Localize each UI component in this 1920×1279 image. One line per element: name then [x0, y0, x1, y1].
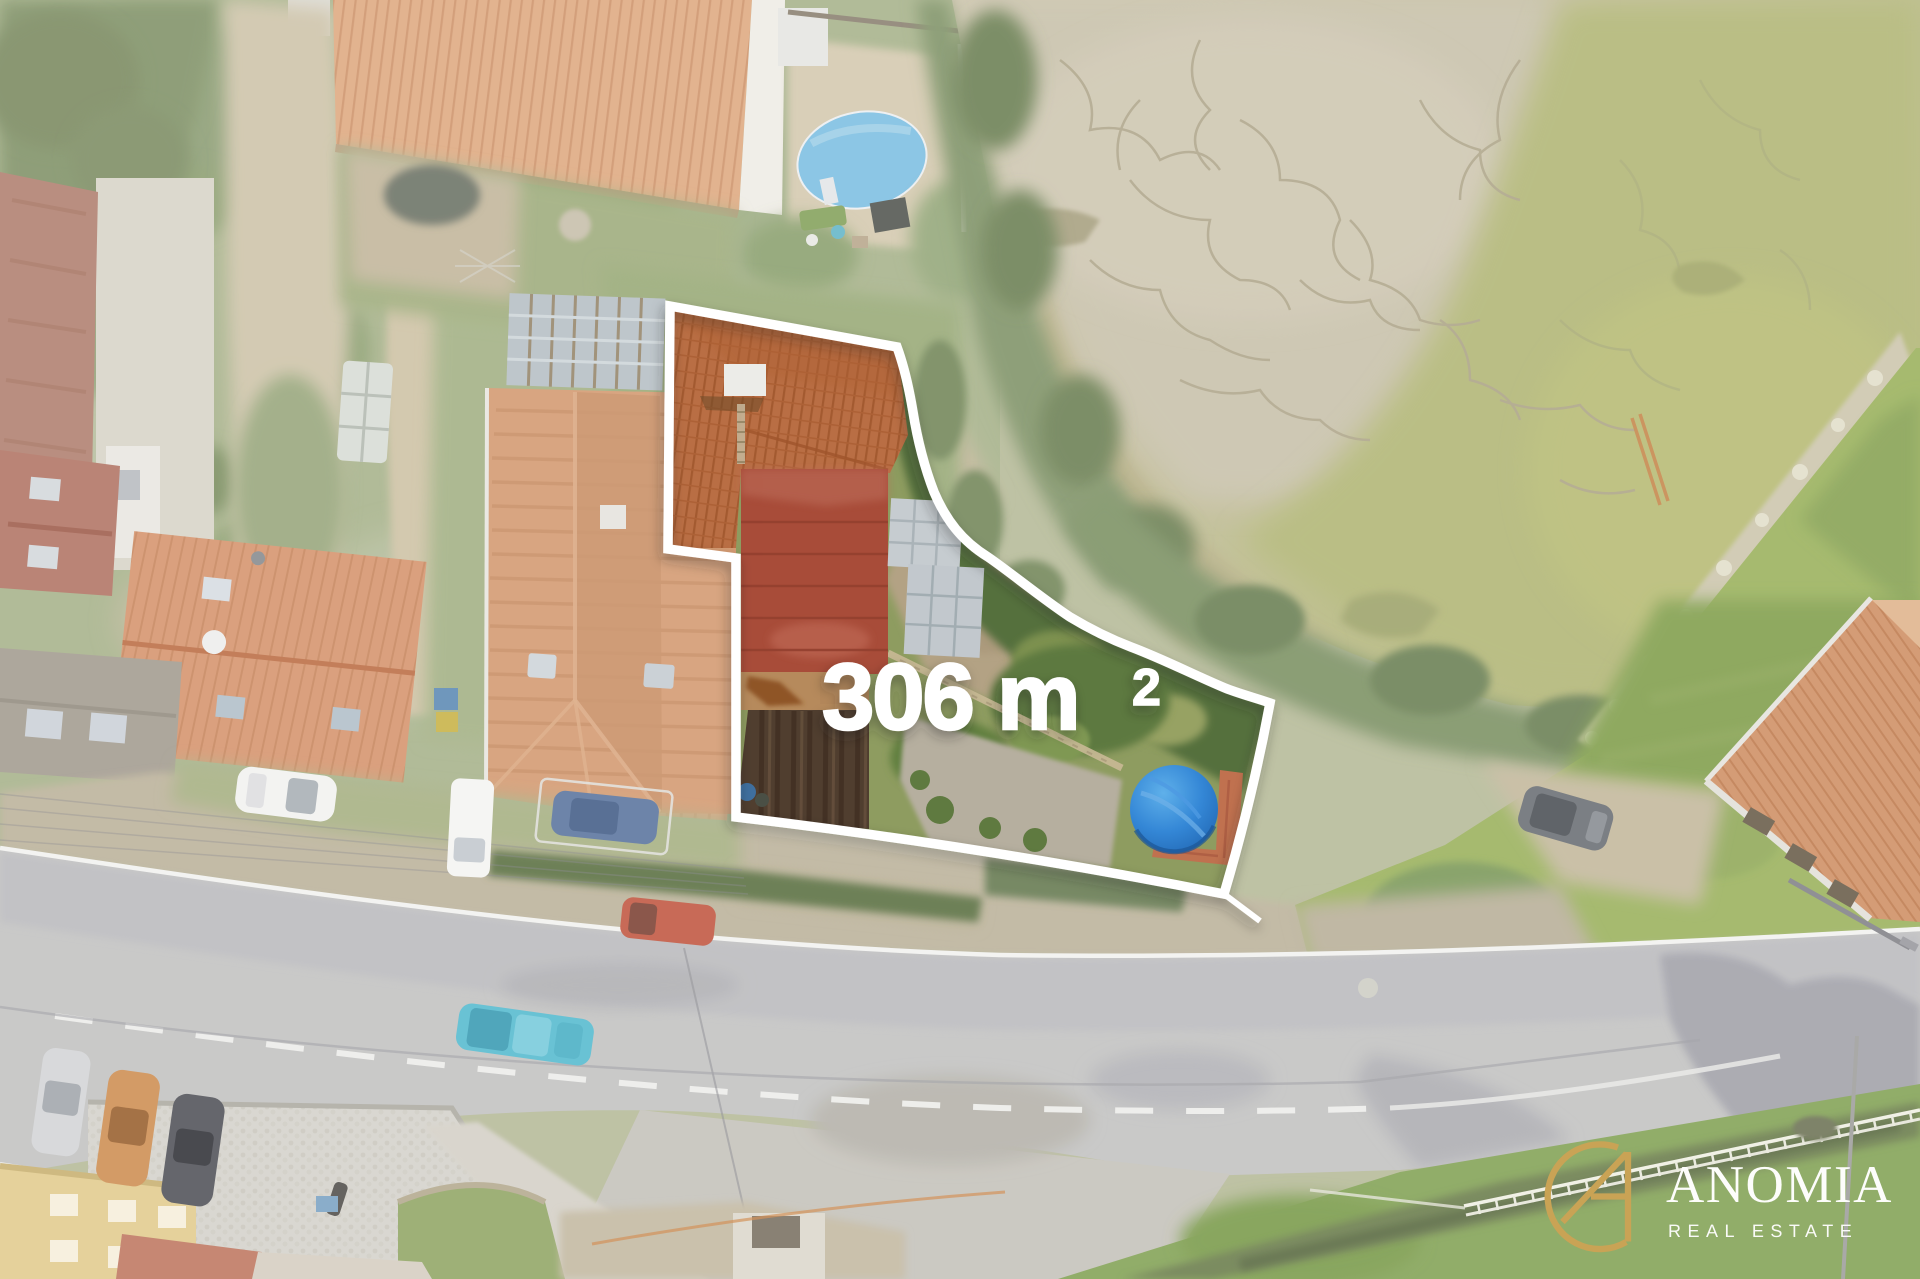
svg-text:2: 2 — [1132, 659, 1161, 717]
svg-text:ANOMIA: ANOMIA — [1666, 1156, 1893, 1214]
svg-text:REAL ESTATE: REAL ESTATE — [1668, 1221, 1858, 1241]
svg-text:306 m: 306 m — [822, 644, 1079, 749]
